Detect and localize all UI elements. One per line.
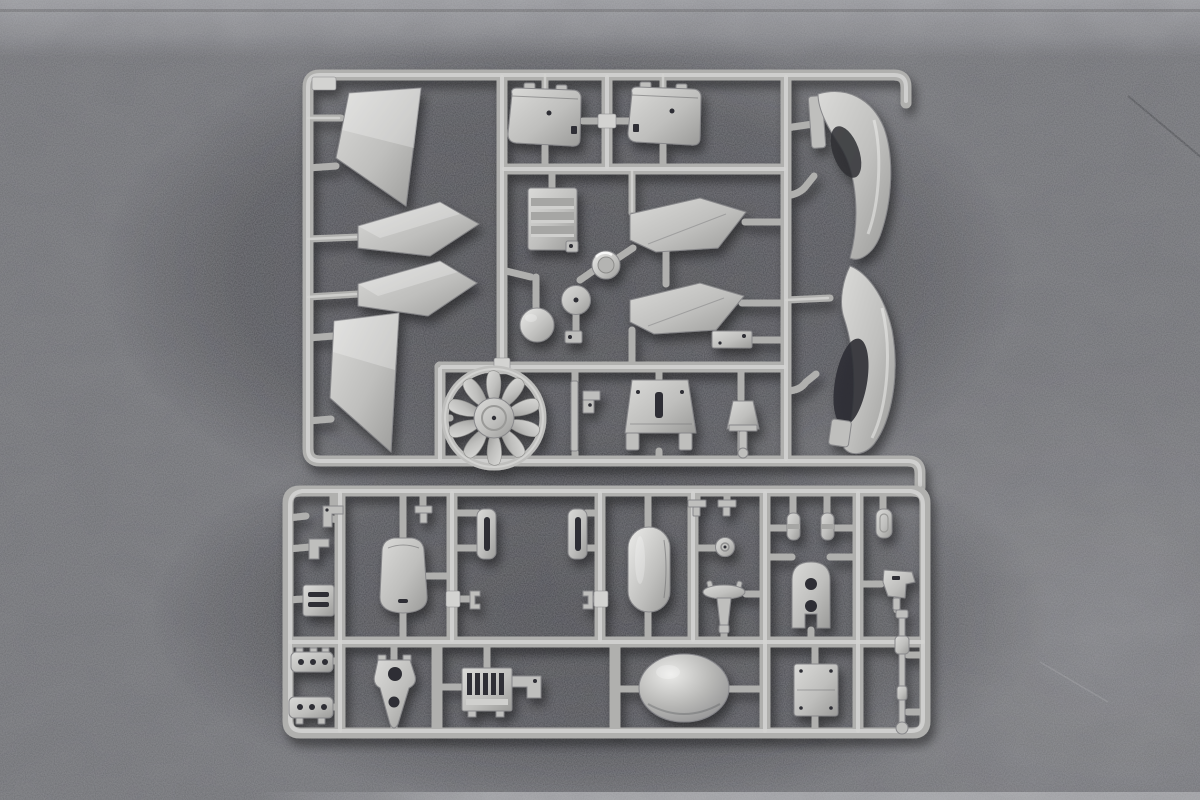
part-slot-panel-2 [568, 509, 587, 559]
part-cylinder-2 [821, 513, 834, 540]
part-knob-part [876, 509, 892, 538]
frame-pad [594, 591, 608, 607]
part-vent-box [303, 585, 334, 616]
part-dome-strut [520, 308, 554, 342]
frame-pad [598, 114, 616, 128]
part-cylinder-1 [787, 513, 800, 540]
part-equipment-box [794, 664, 838, 716]
part-hinge-bracket-small [565, 331, 582, 343]
part-pulley-disc [562, 286, 591, 315]
sprue-photo-screenshot [0, 0, 1200, 800]
part-spar-strip [571, 381, 578, 451]
part-canopy-capsule [628, 527, 670, 612]
backdrop-top-crease [0, 9, 1200, 12]
part-hub-ring-glossy [592, 251, 620, 279]
frame-pad [312, 77, 336, 90]
photo-canvas [0, 0, 1200, 800]
part-engine-cowl-right [628, 82, 701, 145]
part-access-plate [712, 331, 752, 348]
part-engine-cowl-left [508, 83, 581, 146]
part-hole-plate-1 [291, 648, 333, 672]
part-seat-back [380, 538, 427, 613]
part-slot-panel-1 [477, 509, 496, 559]
frame-pad [446, 591, 460, 607]
part-spinner-dome [639, 654, 729, 722]
part-ribbed-avionics-box [528, 188, 578, 252]
backdrop-bottom-edge [250, 792, 1200, 800]
part-small-wheel [716, 538, 735, 557]
backdrop-top-band [0, 0, 1200, 58]
